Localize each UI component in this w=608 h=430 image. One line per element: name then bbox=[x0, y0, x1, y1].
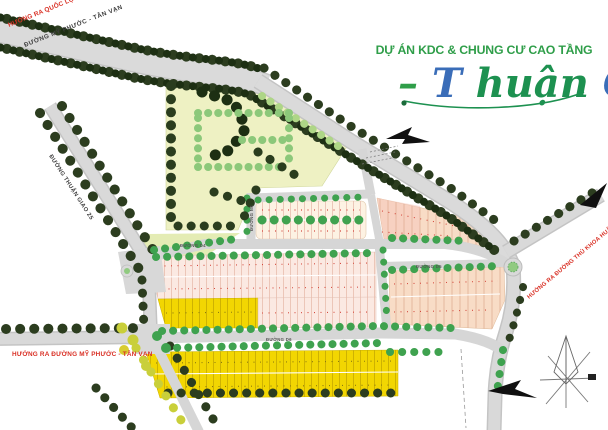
tree bbox=[161, 343, 171, 353]
compass-marker bbox=[588, 374, 596, 380]
boundary-dash-line bbox=[461, 349, 466, 428]
logo-initial-t: T bbox=[432, 60, 465, 107]
tree bbox=[117, 323, 128, 334]
project-title-line: DỰ ÁN KDC & CHUNG CƯ CAO TẦNG bbox=[376, 42, 593, 57]
roundabout-east-island bbox=[508, 262, 518, 272]
block-se-lots bbox=[389, 267, 505, 329]
east-direction-arrow-icon bbox=[580, 183, 607, 208]
block-row-mixed bbox=[158, 297, 376, 328]
logo-word-huan: huận bbox=[476, 60, 603, 107]
tree-row bbox=[96, 388, 134, 430]
north-direction-arrow-icon bbox=[386, 127, 430, 144]
block-southeast bbox=[389, 267, 505, 329]
logo-initial-g: G bbox=[603, 60, 608, 107]
tree-row bbox=[166, 343, 380, 348]
tree-row bbox=[383, 250, 387, 322]
road-label-d4: ĐƯỜNG D4 bbox=[180, 243, 206, 248]
road-label-d6: ĐƯỜNG D6 bbox=[266, 337, 292, 342]
tree bbox=[152, 331, 162, 341]
compass-rose-icon bbox=[540, 336, 596, 408]
tree-row bbox=[514, 190, 597, 241]
master-plan-canvas: HƯỚNG RA QUỐC LỘ 13 ĐƯỜNG MỸ PHƯỚC - TÂN… bbox=[0, 0, 608, 430]
site-plan-map: HƯỚNG RA QUỐC LỘ 13 ĐƯỜNG MỸ PHƯỚC - TÂN… bbox=[0, 0, 608, 430]
road-label-n4: ĐƯỜNG N4 bbox=[249, 205, 254, 231]
tree bbox=[128, 335, 139, 346]
tree-row bbox=[62, 106, 158, 258]
road-d6 bbox=[150, 333, 505, 353]
tree bbox=[141, 361, 151, 371]
road-label-d5: ĐƯỜNG D5 bbox=[416, 264, 442, 269]
project-logo: – T huận G iao bbox=[398, 60, 608, 107]
logo-dash: – bbox=[398, 60, 418, 107]
project-title: DỰ ÁN KDC & CHUNG CƯ CAO TẦNG – T huận G… bbox=[376, 42, 608, 108]
direction-label-my-phuoc: HƯỚNG RA ĐƯỜNG MỸ PHƯỚC - TÂN VẠN bbox=[12, 349, 153, 358]
road-d5 bbox=[380, 263, 505, 266]
roundabout-west-island bbox=[124, 268, 130, 274]
block-row-pink bbox=[148, 252, 376, 299]
tree-row bbox=[40, 113, 139, 269]
